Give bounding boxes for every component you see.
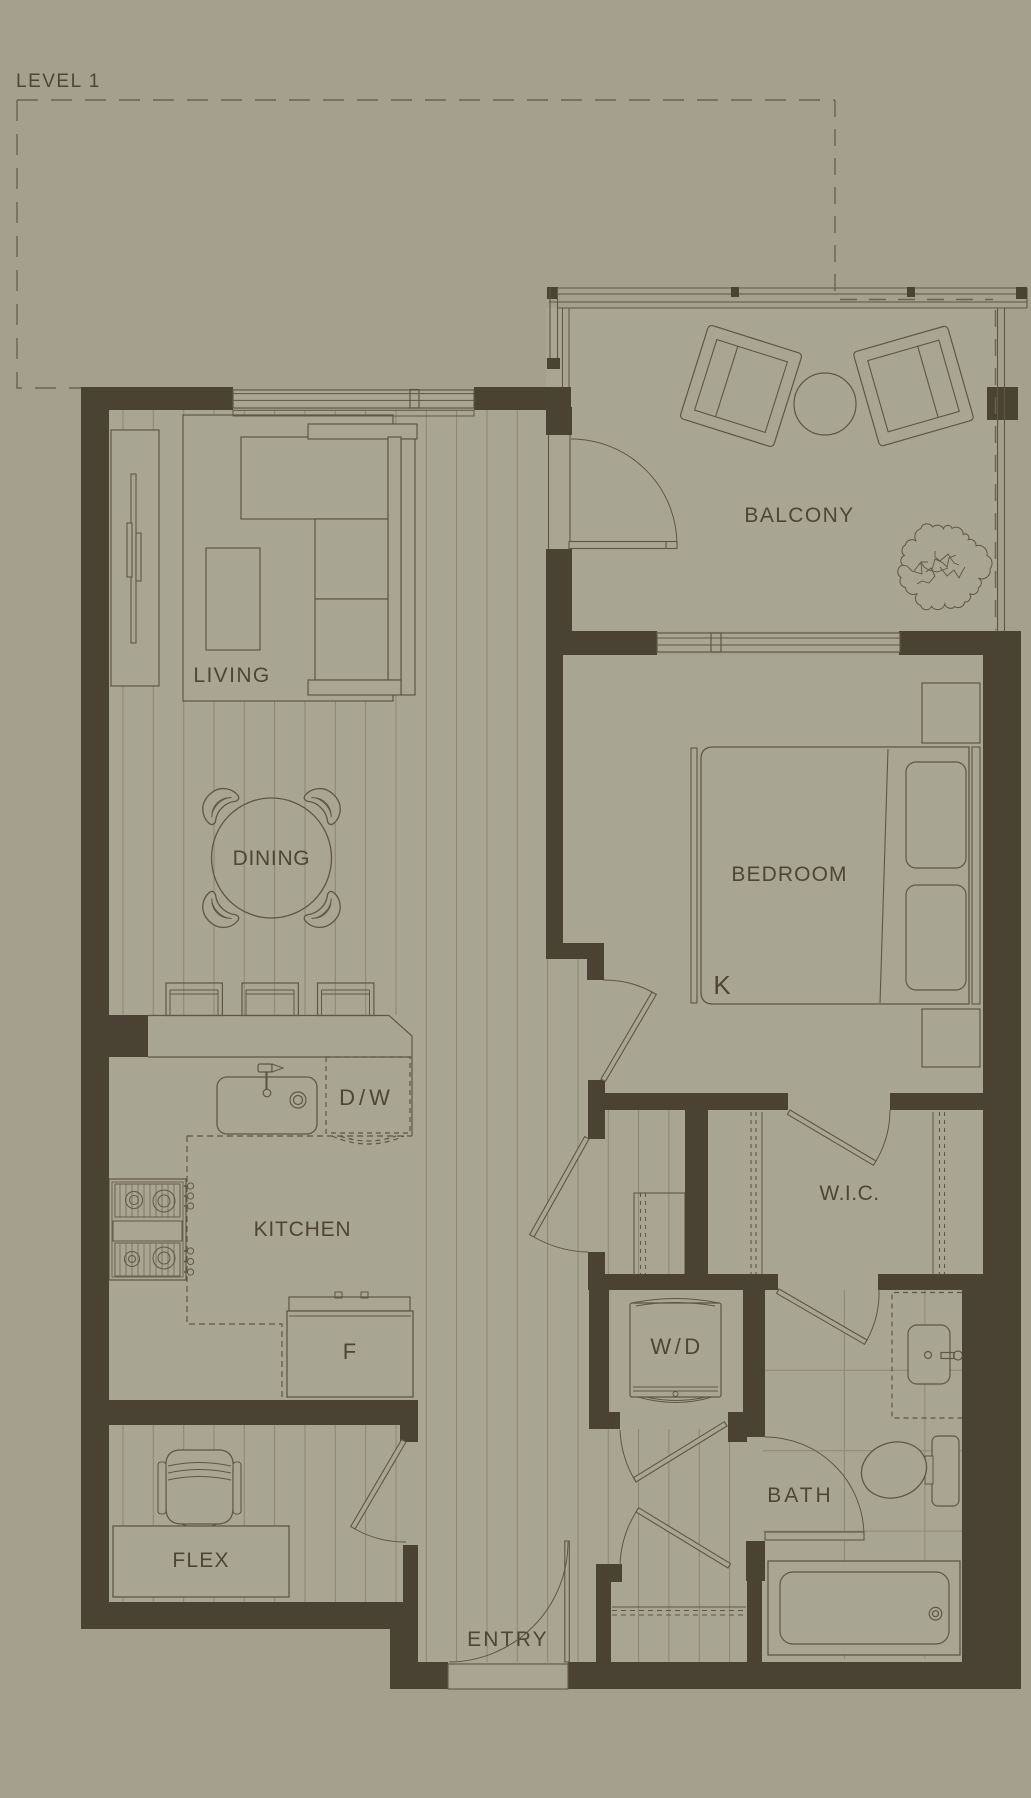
svg-text:BATH: BATH xyxy=(767,1484,833,1507)
svg-text:FLEX: FLEX xyxy=(172,1549,229,1572)
svg-text:ENTRY: ENTRY xyxy=(467,1628,549,1651)
svg-text:KITCHEN: KITCHEN xyxy=(254,1218,352,1241)
svg-text:DINING: DINING xyxy=(233,847,311,870)
svg-text:LIVING: LIVING xyxy=(193,664,270,687)
svg-text:W/D: W/D xyxy=(650,1334,703,1359)
svg-text:K: K xyxy=(713,970,731,1000)
svg-text:F: F xyxy=(343,1339,356,1364)
svg-text:LEVEL 1: LEVEL 1 xyxy=(16,71,101,92)
svg-text:D/W: D/W xyxy=(339,1085,394,1110)
svg-text:W.I.C.: W.I.C. xyxy=(819,1182,879,1205)
svg-text:BALCONY: BALCONY xyxy=(744,504,854,527)
svg-text:BEDROOM: BEDROOM xyxy=(731,863,847,886)
